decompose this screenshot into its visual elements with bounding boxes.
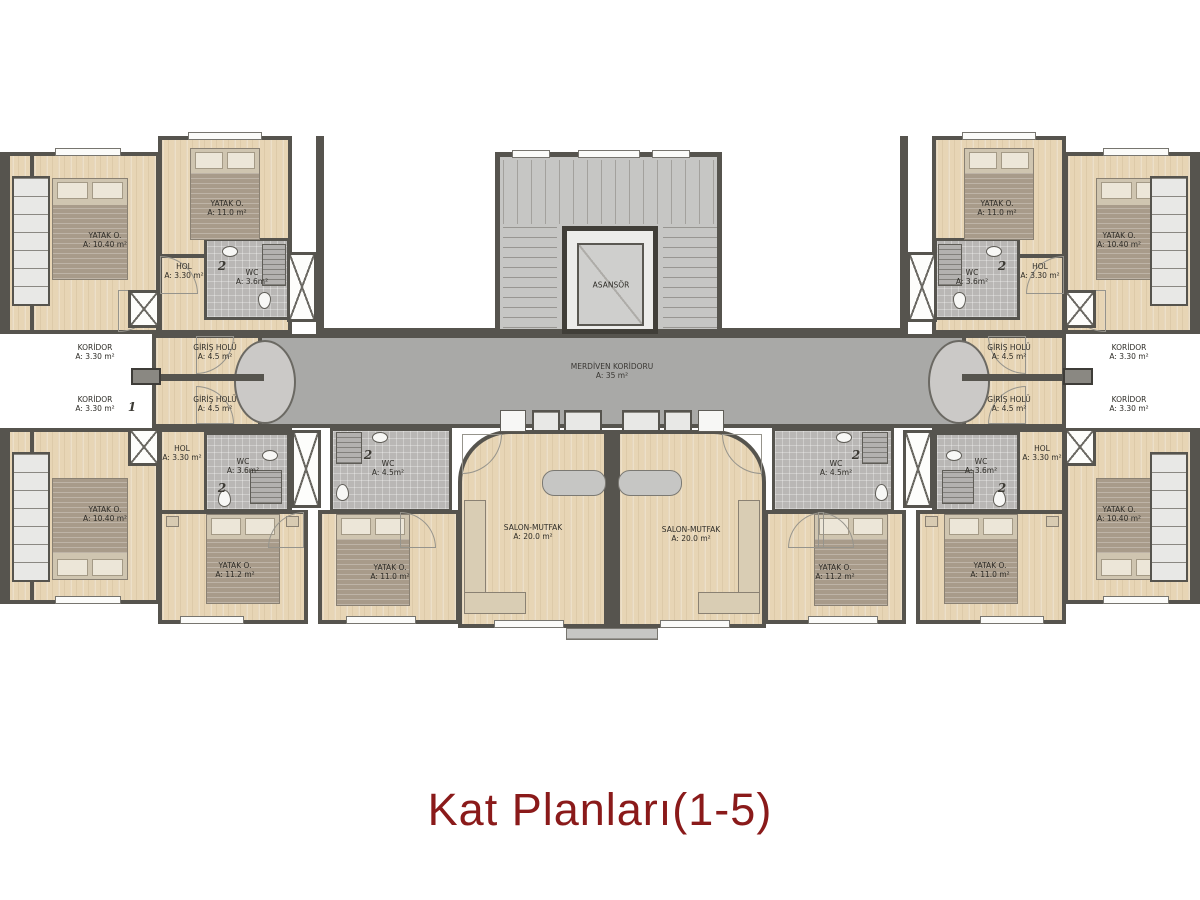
wc-marker-tl: 2	[218, 260, 226, 272]
room-label-koridor-br: KORİDORA: 3.30 m²	[1109, 395, 1148, 413]
nightstand	[166, 516, 179, 527]
shower	[336, 432, 362, 464]
window	[55, 148, 121, 156]
window	[1103, 596, 1169, 604]
pillow	[1101, 559, 1131, 576]
pillow	[92, 182, 122, 199]
shaft-x	[291, 430, 321, 508]
shaft-x	[1064, 428, 1096, 466]
wall	[0, 428, 10, 604]
shower	[250, 470, 282, 504]
shower	[862, 432, 888, 464]
nightstand	[1046, 516, 1059, 527]
room-label-koridor-tl: KORİDORA: 3.30 m²	[75, 343, 114, 361]
salon-terrace-steps	[566, 628, 658, 640]
sink	[986, 246, 1002, 257]
wall	[722, 328, 904, 336]
kitchen-appliance-strip	[1150, 452, 1188, 582]
bed-bl-corner	[52, 478, 128, 580]
wall	[0, 156, 10, 334]
shaft-x	[128, 428, 160, 466]
room-label-giris-tl: GİRİŞ HOLÜA: 4.5 m²	[193, 343, 236, 361]
stair-hall-corridor	[258, 334, 966, 428]
kitchen-appliance-strip	[12, 176, 50, 306]
room-label-wc-big-bl: WCA: 4.5m²	[372, 459, 404, 477]
room-label-hol-br: HOLA: 3.30 m²	[1022, 444, 1061, 462]
room-label-koridor-tr: KORİDORA: 3.30 m²	[1109, 343, 1148, 361]
sink	[946, 450, 962, 461]
shaft-x	[907, 252, 937, 322]
kitchen-fridge-right	[698, 410, 724, 432]
pillow	[969, 152, 997, 169]
room-label-bedroom-br-corner: YATAK O.A: 10.40 m²	[1097, 505, 1141, 523]
pillow	[983, 518, 1012, 535]
wall	[1190, 156, 1200, 334]
shaft-x	[1064, 290, 1096, 328]
room-label-bedroom-bl-outer: YATAK O.A: 11.2 m²	[215, 561, 254, 579]
shaft-x	[287, 252, 317, 322]
bed-bl-outer	[206, 514, 280, 604]
window	[494, 620, 564, 628]
pillow	[92, 559, 122, 576]
pillow	[949, 518, 978, 535]
wall	[900, 136, 908, 334]
corridor-door-panel-left	[131, 368, 161, 385]
shower	[942, 470, 974, 504]
bed-tl-mid	[190, 148, 260, 240]
toilet	[336, 484, 349, 501]
floor-plan-page: ASANSÖR	[0, 0, 1200, 900]
pillow	[341, 518, 370, 535]
sink	[836, 432, 852, 443]
room-label-bedroom-tl-corner: YATAK O.A: 10.40 m²	[83, 231, 127, 249]
wc-marker-big-bl: 2	[364, 449, 372, 461]
shaft-x	[903, 430, 933, 508]
room-label-bedroom-bl-corner: YATAK O.A: 10.40 m²	[83, 505, 127, 523]
corridor-mid-wall-right	[962, 374, 1066, 381]
kitchen-appliance-strip	[1150, 176, 1188, 306]
wc-marker-bl: 2	[218, 482, 226, 494]
room-label-wc-tr: WCA: 3.6m²	[956, 268, 988, 286]
kitchen-counter-right	[622, 410, 660, 432]
shaft-x	[128, 290, 160, 328]
bed-bl-inner	[336, 514, 410, 606]
entry-vestibule-right	[928, 340, 990, 424]
elevator-label: ASANSÖR	[593, 281, 630, 290]
wc-marker-big-br: 2	[852, 449, 860, 461]
room-label-wc-bl: WCA: 3.6m²	[227, 457, 259, 475]
sofa-left-back	[464, 500, 486, 594]
corridor-door-panel-right	[1063, 368, 1093, 385]
window	[346, 616, 416, 624]
wall	[1190, 428, 1200, 604]
pillow	[211, 518, 240, 535]
window	[55, 596, 121, 604]
pillow	[195, 152, 223, 169]
room-label-wc-br: WCA: 3.6m²	[965, 457, 997, 475]
room-label-salon-right: SALON-MUTFAKA: 20.0 m²	[662, 525, 720, 543]
kitchen-bar-right	[618, 470, 682, 496]
entry-vestibule-left	[234, 340, 296, 424]
room-label-bedroom-tr-mid: YATAK O.A: 11.0 m²	[977, 199, 1016, 217]
stairs-right-flight	[663, 226, 717, 328]
window	[660, 620, 730, 628]
room-label-bedroom-br-inner: YATAK O.A: 11.2 m²	[815, 563, 854, 581]
sink	[222, 246, 238, 257]
window	[578, 150, 640, 158]
bed-br-outer	[944, 514, 1018, 604]
stairs-left-flight	[503, 226, 557, 328]
wall	[318, 328, 500, 336]
window	[1103, 148, 1169, 156]
pillow	[57, 182, 87, 199]
window	[962, 132, 1036, 140]
room-label-hol-tl: HOLA: 3.30 m²	[164, 262, 203, 280]
pillow	[227, 152, 255, 169]
room-label-stair-hall: MERDİVEN KORİDORUA: 35 m²	[571, 362, 654, 380]
page-title: Kat Planları(1-5)	[0, 784, 1200, 836]
sofa-right-back	[738, 500, 760, 594]
window	[980, 616, 1044, 624]
toilet	[875, 484, 888, 501]
stairs-upper-landing	[503, 160, 715, 224]
unit-number-marker: 1	[128, 401, 136, 413]
room-label-bedroom-bl-inner: YATAK O.A: 11.0 m²	[370, 563, 409, 581]
kitchen-bar-left	[542, 470, 606, 496]
sofa-right-seat	[698, 592, 760, 614]
kitchen-fridge-left	[500, 410, 526, 432]
window	[180, 616, 244, 624]
window	[808, 616, 878, 624]
room-label-wc-big-br: WCA: 4.5m²	[820, 459, 852, 477]
room-label-bedroom-tr-corner: YATAK O.A: 10.40 m²	[1097, 231, 1141, 249]
window	[652, 150, 690, 158]
room-label-giris-bl: GİRİŞ HOLÜA: 4.5 m²	[193, 395, 236, 413]
wc-marker-br: 2	[998, 482, 1006, 494]
room-label-koridor-bl: KORİDORA: 3.30 m²	[75, 395, 114, 413]
pillow	[57, 559, 87, 576]
wc-marker-tr: 2	[998, 260, 1006, 272]
pillow	[853, 518, 882, 535]
sink	[372, 432, 388, 443]
salon-divider-wall	[605, 430, 619, 628]
kitchen-counter-left	[564, 410, 602, 432]
room-label-salon-left: SALON-MUTFAKA: 20.0 m²	[504, 523, 562, 541]
window	[188, 132, 262, 140]
room-label-bedroom-tl-mid: YATAK O.A: 11.0 m²	[207, 199, 246, 217]
window	[512, 150, 550, 158]
room-label-wc-tl: WCA: 3.6m²	[236, 268, 268, 286]
wall	[316, 136, 324, 334]
sofa-left-seat	[464, 592, 526, 614]
kitchen-stove-right	[664, 410, 692, 432]
bed-tl-corner	[52, 178, 128, 280]
room-label-hol-bl: HOLA: 3.30 m²	[162, 444, 201, 462]
sink	[262, 450, 278, 461]
bed-tr-mid	[964, 148, 1034, 240]
room-label-giris-tr: GİRİŞ HOLÜA: 4.5 m²	[987, 343, 1030, 361]
room-label-giris-br: GİRİŞ HOLÜA: 4.5 m²	[987, 395, 1030, 413]
pillow	[1001, 152, 1029, 169]
room-label-bedroom-br-outer: YATAK O.A: 11.0 m²	[970, 561, 1009, 579]
room-label-hol-tr: HOLA: 3.30 m²	[1020, 262, 1059, 280]
kitchen-appliance-strip	[12, 452, 50, 582]
corridor-mid-wall-left	[152, 374, 264, 381]
pillow	[1101, 182, 1131, 199]
kitchen-stove-left	[532, 410, 560, 432]
nightstand	[925, 516, 938, 527]
